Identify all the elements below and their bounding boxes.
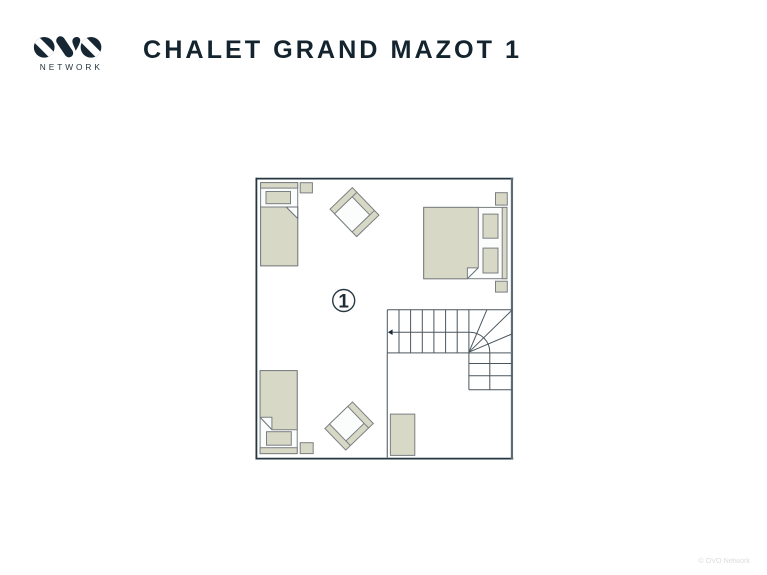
svg-text:1: 1 xyxy=(338,292,349,313)
